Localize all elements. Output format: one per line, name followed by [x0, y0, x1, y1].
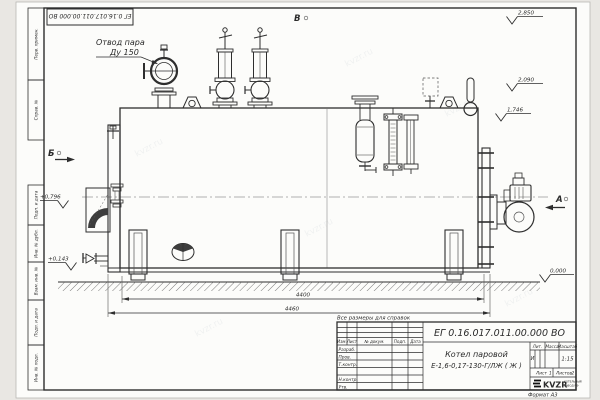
margin-label: Подп. и дата: [34, 308, 39, 337]
lit-value: И: [531, 356, 535, 362]
view-label-left: Б: [48, 149, 55, 159]
margin-label: Инв. № дубл.: [34, 229, 39, 258]
elevation-value: 2,850: [518, 11, 534, 17]
hdr-list: Лист: [346, 339, 358, 344]
view-label-right: А: [555, 195, 563, 205]
top-stamp-number: ЕГ 0.16.017.011.00.000 ВО: [48, 12, 131, 19]
scale-value: 1:15: [561, 357, 574, 363]
dimension-value: 4400: [296, 293, 311, 299]
elevation-value: 0,000: [550, 269, 566, 275]
screenshot-root: kvzr.ru kvzr.ru kvzr.ru kvzr.ru kvzr.ru …: [0, 0, 600, 400]
margin-label: Перв. примен.: [34, 28, 39, 59]
logo-caption-2: ЗАВОД РФ: [564, 384, 579, 388]
product-name-line2: Е-1,6-0,17-130-Г/ЛЖ ( Ж ): [431, 362, 522, 370]
sheets-value: 2: [572, 371, 575, 377]
elevation-value: +0,796: [40, 195, 61, 201]
sheets-label: Листов: [555, 371, 573, 377]
ground: [58, 282, 540, 291]
format-note: Формат А3: [528, 393, 558, 399]
elevation-value: 2,090: [518, 78, 534, 84]
view-label-top: В: [294, 14, 300, 24]
hdr-doc: № докум.: [363, 339, 384, 344]
margin-label: Инв. № подл.: [34, 353, 39, 382]
reference-note: Все размеры для справок: [337, 316, 411, 322]
margin-label: Подп. и дата: [34, 190, 39, 219]
dimension-value: 4460: [285, 307, 300, 313]
row-approved: Утв.: [339, 385, 348, 391]
hdr-scale: Масштаб: [558, 344, 578, 349]
steam-outlet-label-2: Ду 150: [109, 48, 139, 57]
elevation-value: 1,746: [507, 108, 523, 114]
doc-number: ЕГ 0.16.017.011.00.000 ВО: [434, 328, 566, 339]
row-developed: Разраб.: [339, 347, 356, 353]
row-tcontrol: Т.контр.: [339, 362, 358, 368]
product-name-line1: Котел паровой: [445, 350, 508, 359]
steam-outlet-label-1: Отвод пара: [96, 38, 145, 47]
drawing-canvas: kvzr.ru kvzr.ru kvzr.ru kvzr.ru kvzr.ru …: [0, 0, 600, 400]
margin-label: Взам. инв. №: [34, 266, 39, 295]
sheet-label: Лист: [535, 371, 547, 377]
sheet-value: 1: [549, 371, 552, 377]
hdr-date: Дата: [409, 339, 421, 344]
hdr-izm: Изм.: [337, 339, 347, 344]
hdr-sign: Подп.: [394, 339, 406, 344]
row-checked: Пров.: [339, 355, 352, 361]
elevation-value: +0,143: [48, 257, 69, 263]
row-ncontrol: Н.контр.: [339, 377, 358, 383]
hdr-lit: Лит.: [532, 344, 542, 349]
logo-bars-icon: [533, 381, 541, 387]
margin-label: Справ. №: [34, 99, 39, 120]
